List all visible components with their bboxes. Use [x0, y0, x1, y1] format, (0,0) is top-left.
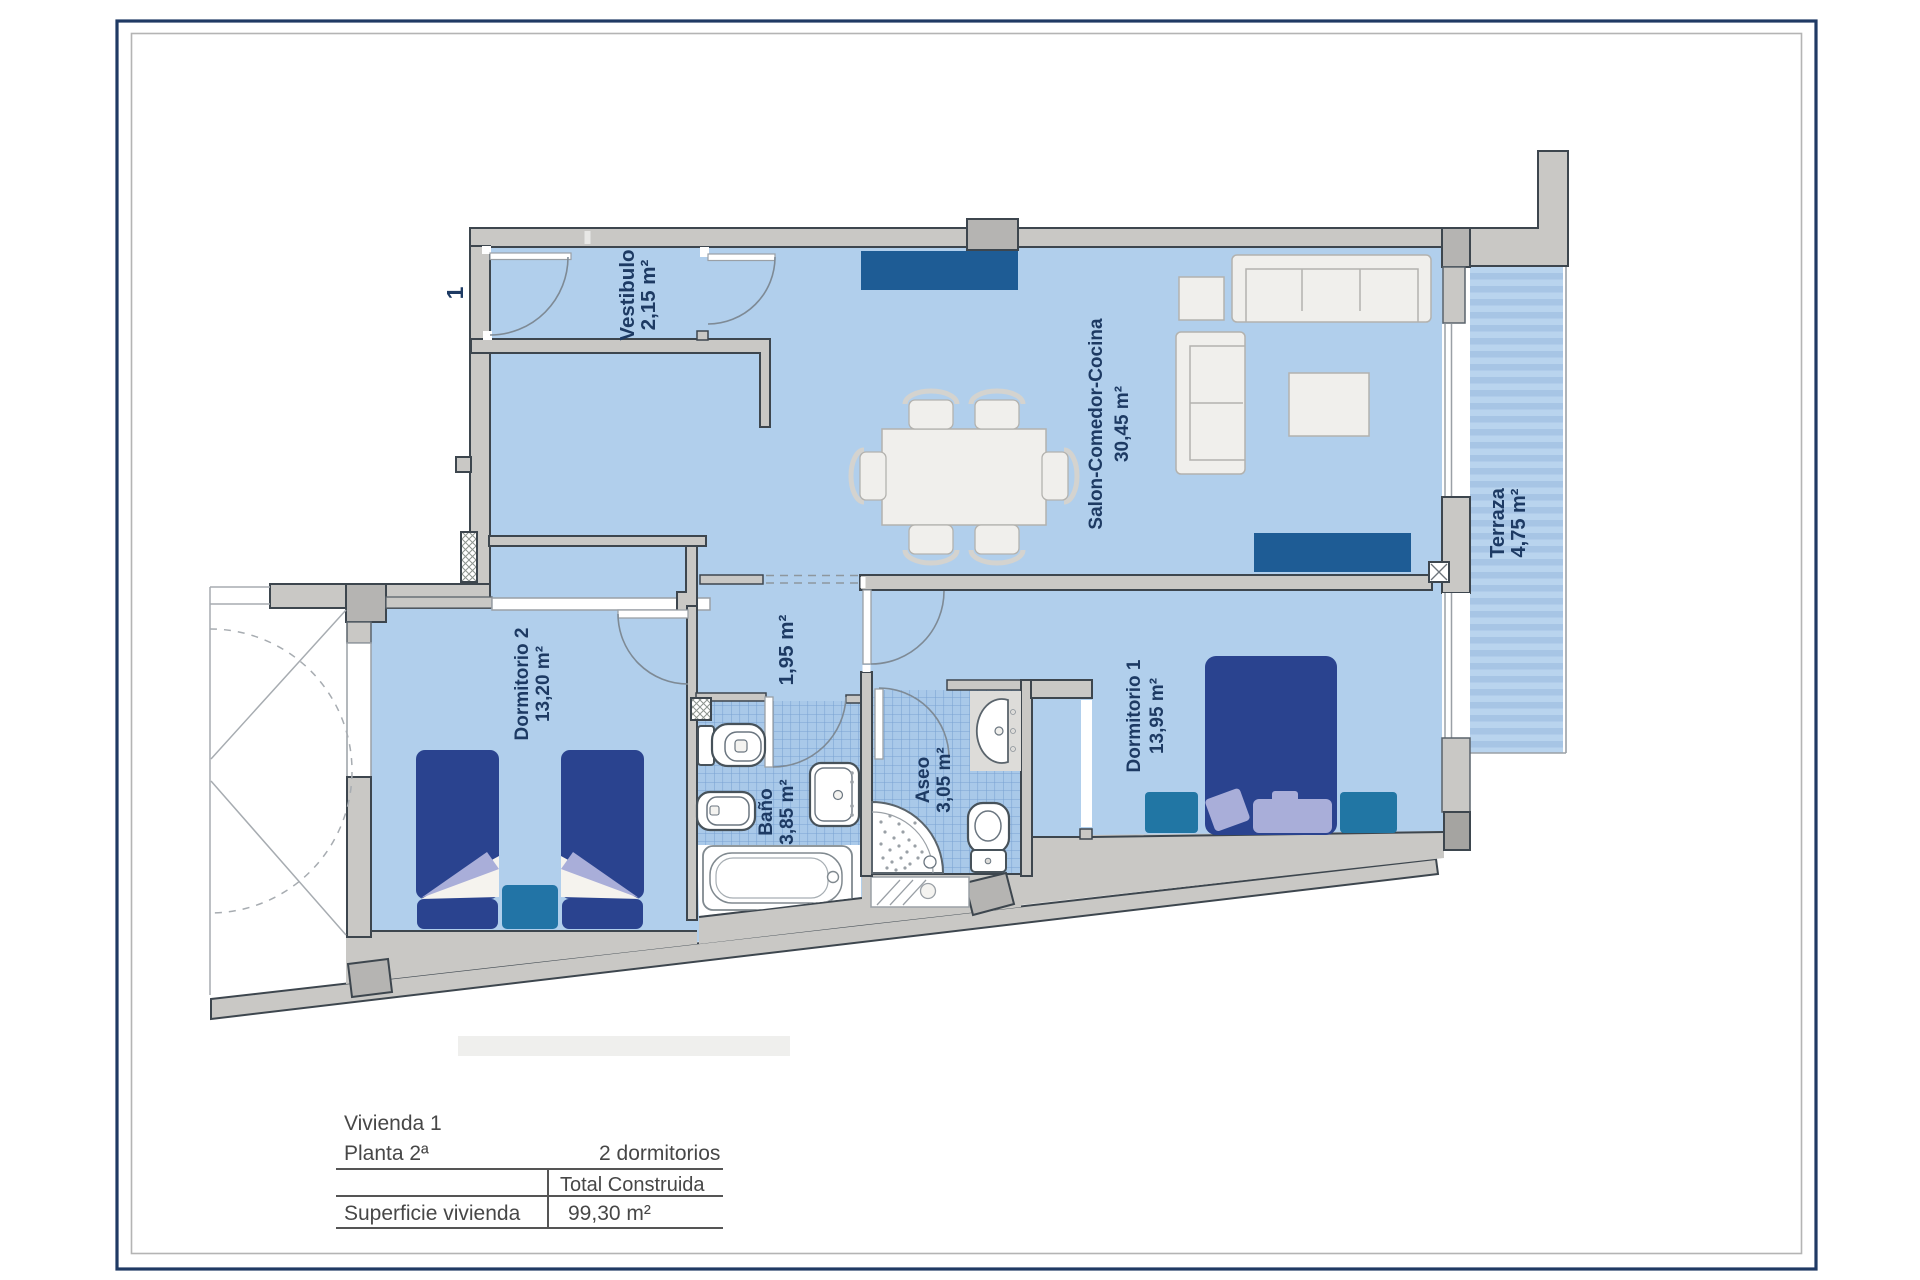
svg-text:Total Construida: Total Construida: [560, 1174, 705, 1196]
svg-text:Vivienda 1: Vivienda 1: [344, 1112, 442, 1135]
svg-text:1: 1: [442, 286, 468, 299]
svg-text:3,05 m²: 3,05 m²: [934, 747, 955, 812]
svg-text:Vestibulo: Vestibulo: [616, 249, 639, 340]
svg-text:Dormitorio 2: Dormitorio 2: [512, 628, 533, 741]
svg-text:Baño: Baño: [756, 788, 777, 836]
svg-text:4,75 m²: 4,75 m²: [1508, 488, 1530, 557]
svg-text:Aseo: Aseo: [913, 757, 934, 803]
svg-text:Superficie vivienda: Superficie vivienda: [344, 1202, 521, 1225]
svg-text:99,30 m²: 99,30 m²: [568, 1202, 651, 1225]
svg-text:2,15 m²: 2,15 m²: [637, 260, 660, 331]
svg-text:13,95 m²: 13,95 m²: [1147, 678, 1168, 754]
svg-text:30,45 m²: 30,45 m²: [1112, 386, 1133, 462]
svg-text:Dormitorio 1: Dormitorio 1: [1124, 659, 1145, 772]
svg-text:1,95 m²: 1,95 m²: [775, 615, 798, 686]
svg-text:2 dormitorios: 2 dormitorios: [599, 1142, 720, 1165]
svg-text:13,20 m²: 13,20 m²: [533, 646, 554, 722]
svg-text:Salon-Comedor-Cocina: Salon-Comedor-Cocina: [1086, 318, 1107, 530]
svg-text:Planta 2ª: Planta 2ª: [344, 1142, 429, 1165]
svg-text:3,85 m²: 3,85 m²: [777, 779, 798, 844]
svg-text:Terraza: Terraza: [1487, 487, 1509, 558]
